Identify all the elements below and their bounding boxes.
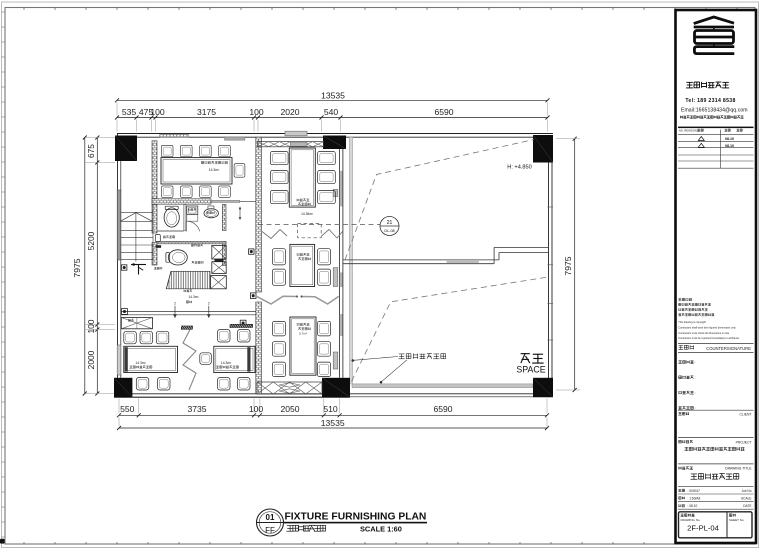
svg-text:01: 01 — [266, 513, 275, 522]
svg-text:2050: 2050 — [280, 404, 299, 414]
svg-text:DL-08: DL-08 — [384, 229, 394, 233]
svg-text:5.7m²: 5.7m² — [299, 332, 307, 336]
svg-text:7975: 7975 — [72, 258, 82, 277]
svg-text:2F-PL-04: 2F-PL-04 — [687, 524, 719, 533]
svg-text::: : — [695, 391, 696, 395]
svg-text:2: 2 — [174, 302, 176, 306]
svg-text:2: 2 — [208, 302, 210, 306]
svg-text:510: 510 — [323, 404, 338, 414]
svg-text:21: 21 — [387, 220, 393, 226]
svg-text:13535: 13535 — [321, 90, 345, 100]
svg-text:NO. REVISIONS: NO. REVISIONS — [679, 128, 699, 132]
svg-text:14.3m²: 14.3m² — [135, 361, 146, 365]
svg-text:COUNTERSIGNATURE: COUNTERSIGNATURE — [706, 346, 751, 351]
svg-text:14.3m²: 14.3m² — [221, 361, 232, 365]
svg-text:3735: 3735 — [187, 404, 206, 414]
svg-text:6590: 6590 — [434, 107, 453, 117]
svg-text:: 1:60/A3: : 1:60/A3 — [688, 496, 701, 500]
svg-text::: : — [695, 406, 696, 410]
svg-text:Contractors must check all dim: Contractors must check all dimensions on… — [678, 332, 729, 335]
svg-text:SPACE: SPACE — [516, 365, 545, 375]
svg-text:This drawing is copyright: This drawing is copyright — [678, 321, 706, 324]
svg-text:SCALE: SCALE — [741, 496, 751, 500]
svg-text:7975: 7975 — [563, 256, 573, 275]
svg-text:13535: 13535 — [321, 418, 345, 428]
svg-text:FF: FF — [265, 526, 275, 535]
svg-text:2000: 2000 — [86, 350, 96, 369]
svg-text:FIXTURE FURNISHING PLAN: FIXTURE FURNISHING PLAN — [285, 512, 427, 523]
svg-text:Tel: 189 2314 8538: Tel: 189 2314 8538 — [685, 98, 735, 104]
svg-text:08.10: 08.10 — [725, 137, 734, 141]
svg-text:: 000017: : 000017 — [688, 489, 701, 493]
svg-text:Job No: Job No — [741, 489, 751, 493]
svg-text:100: 100 — [249, 107, 264, 117]
svg-text:DRAWING TITLE: DRAWING TITLE — [725, 467, 752, 471]
svg-text:3175: 3175 — [197, 107, 216, 117]
svg-text:100: 100 — [150, 107, 165, 117]
svg-text:H: +4.850: H: +4.850 — [507, 165, 531, 171]
svg-text:14.3m²: 14.3m² — [209, 168, 220, 172]
svg-text:14.3m²: 14.3m² — [189, 295, 199, 299]
svg-text:Contractors must be reported i: Contractors must be reported immediately… — [678, 337, 739, 340]
svg-text:100: 100 — [249, 404, 264, 414]
svg-text:SCALE 1:60: SCALE 1:60 — [360, 524, 402, 533]
svg-text:540: 540 — [324, 107, 339, 117]
svg-text:Email:1665138434@qq.com: Email:1665138434@qq.com — [681, 108, 748, 114]
svg-text:6590: 6590 — [433, 404, 452, 414]
svg-text:PROJECT: PROJECT — [736, 440, 752, 444]
svg-text:550: 550 — [120, 404, 135, 414]
svg-text:535: 535 — [122, 107, 137, 117]
svg-text:CLIENT: CLIENT — [739, 412, 751, 416]
svg-text:DATE: DATE — [743, 504, 751, 508]
svg-text:: 08.10: : 08.10 — [688, 504, 698, 508]
svg-text:100: 100 — [86, 319, 96, 333]
svg-text:Contractors shall work form fi: Contractors shall work form figured dime… — [678, 327, 736, 330]
svg-text:08.10: 08.10 — [725, 144, 734, 148]
svg-text::: : — [695, 376, 696, 380]
svg-text:DRAWING No.: DRAWING No. — [681, 518, 701, 522]
svg-text:14.36m²: 14.36m² — [301, 212, 313, 216]
svg-text:675: 675 — [86, 144, 96, 158]
svg-text:5200: 5200 — [86, 231, 96, 250]
svg-text:SHEET No.: SHEET No. — [729, 518, 745, 522]
svg-text::: : — [695, 360, 696, 364]
svg-text:2020: 2020 — [280, 107, 299, 117]
